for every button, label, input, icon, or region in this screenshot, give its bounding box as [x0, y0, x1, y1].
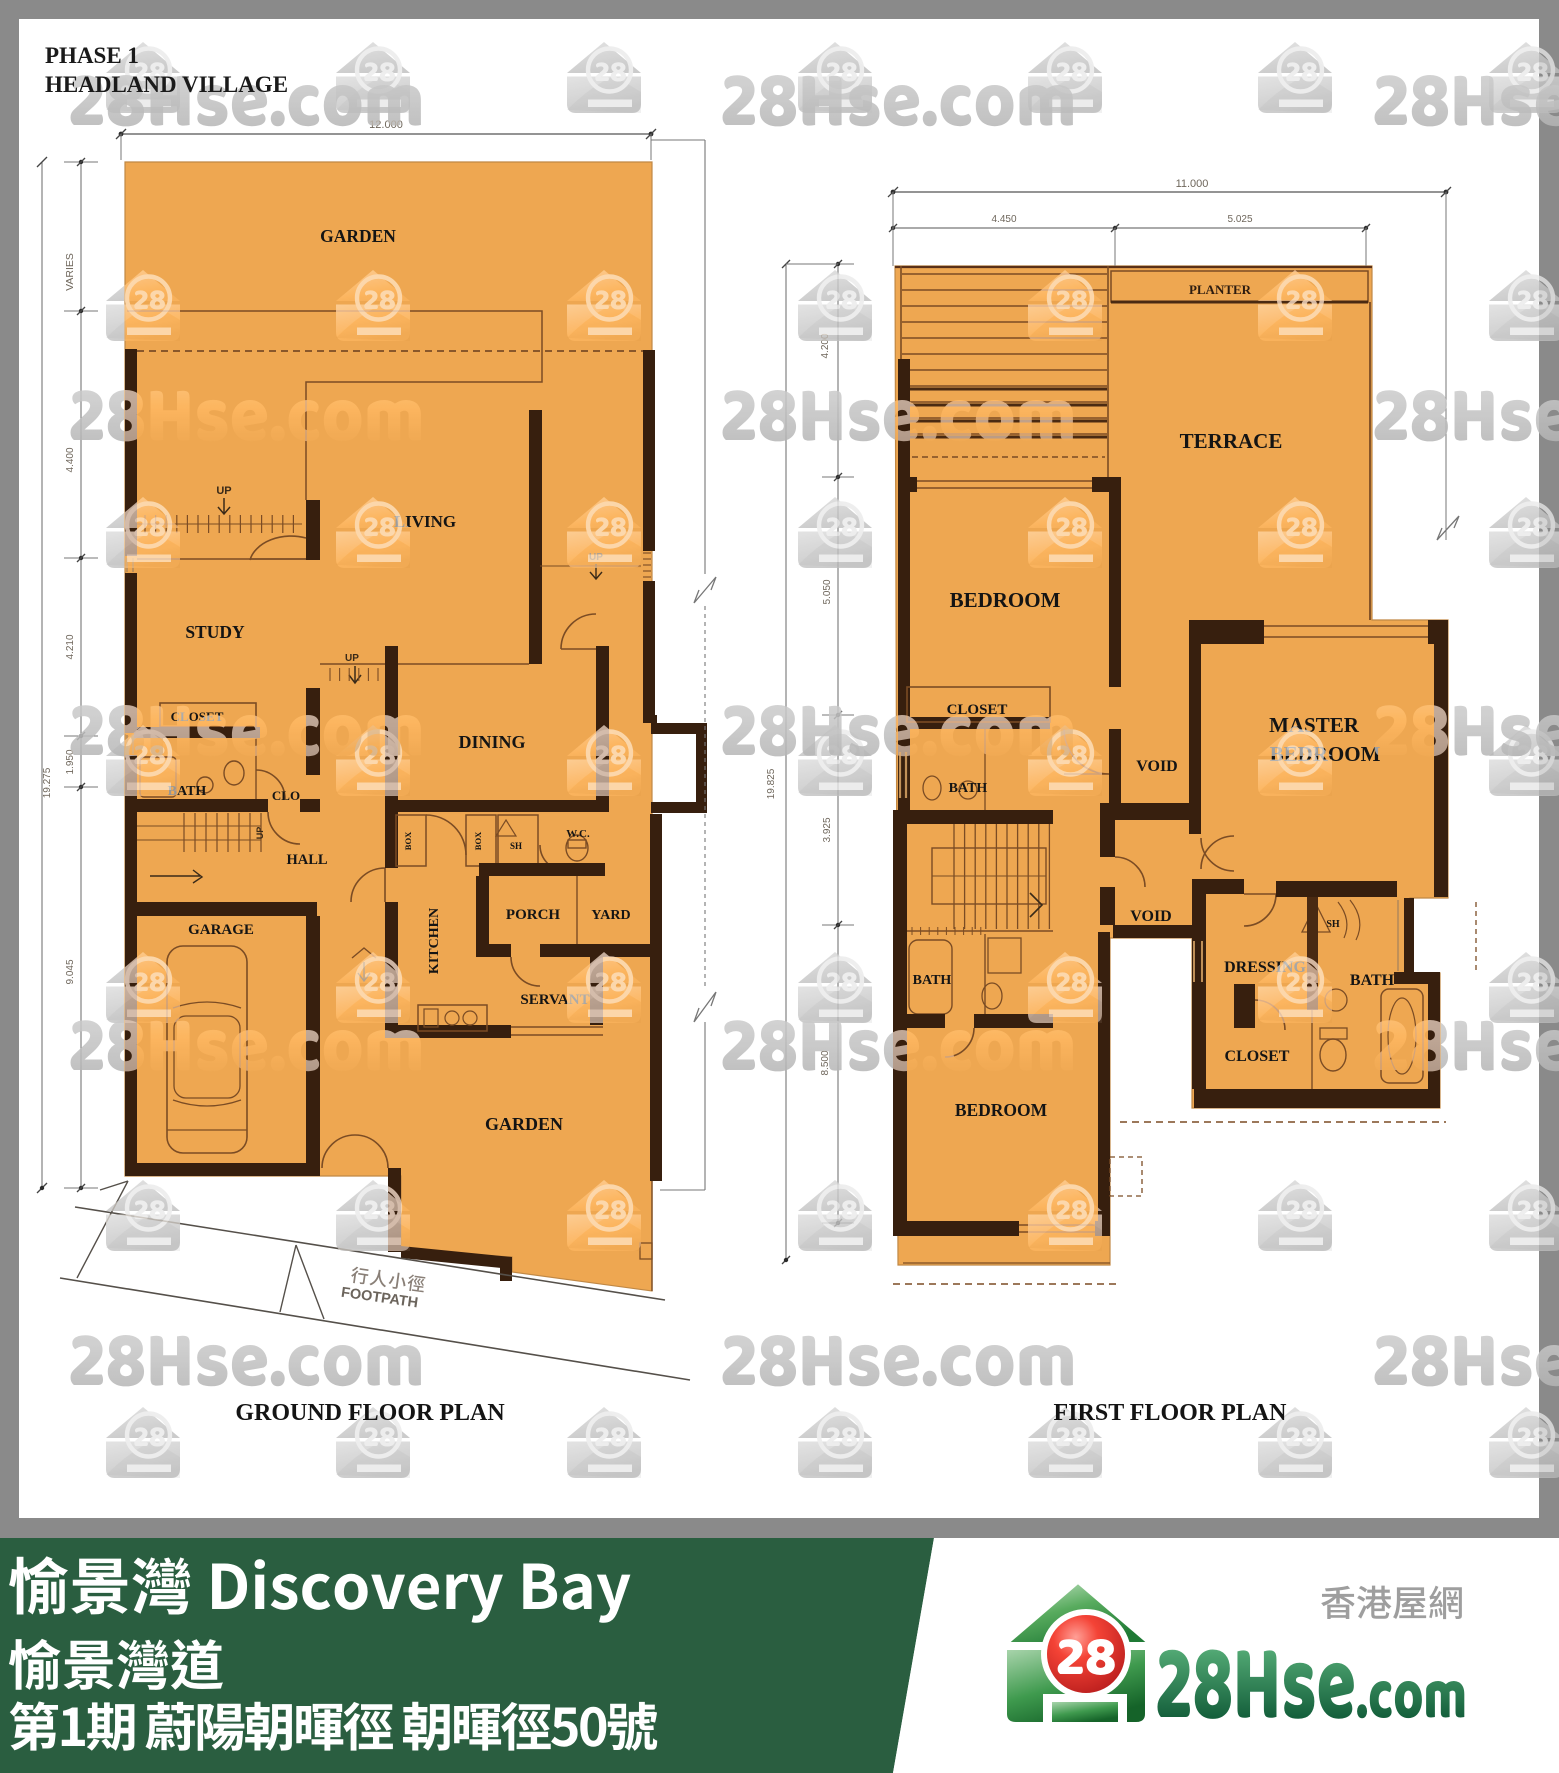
svg-text:9.045: 9.045 [65, 959, 76, 984]
svg-text:FIRST FLOOR PLAN: FIRST FLOOR PLAN [1054, 1400, 1288, 1426]
svg-text:STUDY: STUDY [185, 622, 245, 642]
svg-text:19.275: 19.275 [42, 767, 53, 798]
svg-text:VOID: VOID [1130, 908, 1171, 925]
svg-text:VARIES: VARIES [64, 253, 76, 291]
svg-text:UP: UP [216, 485, 231, 497]
svg-text:PLANTER: PLANTER [1189, 282, 1252, 297]
svg-text:PHASE 1: PHASE 1 [45, 43, 139, 68]
svg-text:TERRACE: TERRACE [1180, 429, 1283, 453]
svg-text:LIVING: LIVING [394, 512, 456, 531]
svg-text:5.050: 5.050 [822, 579, 833, 604]
svg-text:GARDEN: GARDEN [320, 226, 396, 246]
svg-text:VOID: VOID [1136, 758, 1177, 775]
svg-text:BATH: BATH [949, 781, 988, 796]
svg-text:GARAGE: GARAGE [188, 922, 254, 938]
svg-text:HEADLAND VILLAGE: HEADLAND VILLAGE [45, 72, 288, 97]
svg-text:HALL: HALL [286, 852, 327, 868]
svg-text:3.925: 3.925 [822, 817, 833, 842]
svg-text:KITCHEN: KITCHEN [427, 908, 442, 974]
svg-text:BEDROOM: BEDROOM [950, 588, 1061, 612]
svg-text:5.025: 5.025 [1227, 214, 1252, 225]
svg-text:11.000: 11.000 [1176, 178, 1209, 190]
svg-text:W.C.: W.C. [566, 828, 590, 840]
svg-text:19.825: 19.825 [766, 768, 777, 799]
svg-text:4.400: 4.400 [65, 447, 76, 472]
svg-text:BATH: BATH [913, 973, 952, 988]
svg-text:CLO: CLO [272, 788, 300, 803]
svg-text:MASTER: MASTER [1269, 713, 1360, 737]
svg-text:DINING: DINING [458, 732, 525, 752]
svg-text:GROUND FLOOR PLAN: GROUND FLOOR PLAN [235, 1400, 505, 1426]
svg-text:SH: SH [510, 841, 522, 851]
svg-text:PORCH: PORCH [506, 907, 560, 923]
svg-text:4.450: 4.450 [991, 214, 1016, 225]
svg-text:4.210: 4.210 [65, 634, 76, 659]
svg-text:BOX: BOX [473, 831, 483, 850]
svg-text:BATH: BATH [1350, 972, 1395, 989]
svg-text:UP: UP [345, 653, 359, 664]
svg-text:YARD: YARD [591, 908, 630, 923]
svg-text:BEDROOM: BEDROOM [955, 1100, 1048, 1120]
svg-text:GARDEN: GARDEN [485, 1114, 563, 1134]
svg-text:UP: UP [255, 827, 265, 840]
svg-text:SH: SH [1326, 919, 1340, 930]
svg-text:BOX: BOX [403, 831, 413, 850]
svg-text:CLOSET: CLOSET [1225, 1048, 1290, 1065]
